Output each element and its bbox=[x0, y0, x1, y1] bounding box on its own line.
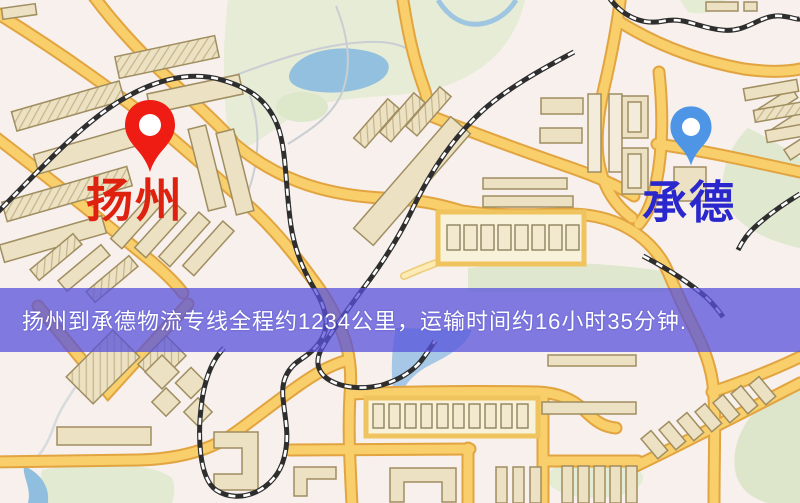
destination-label: 承德 bbox=[642, 180, 736, 225]
map-canvas: 扬州 承德 扬州到承德物流专线全程约1234公里，运输时间约16小时35分钟. bbox=[0, 0, 800, 503]
map-pin-icon bbox=[668, 104, 714, 168]
origin-pin[interactable] bbox=[122, 98, 178, 179]
map-pin-icon bbox=[122, 98, 178, 174]
destination-pin[interactable] bbox=[668, 104, 714, 173]
origin-label: 扬州 bbox=[86, 178, 184, 225]
map-artwork bbox=[0, 0, 800, 503]
route-info-banner: 扬州到承德物流专线全程约1234公里，运输时间约16小时35分钟. bbox=[0, 288, 800, 352]
route-info-text: 扬州到承德物流专线全程约1234公里，运输时间约16小时35分钟. bbox=[22, 304, 687, 336]
